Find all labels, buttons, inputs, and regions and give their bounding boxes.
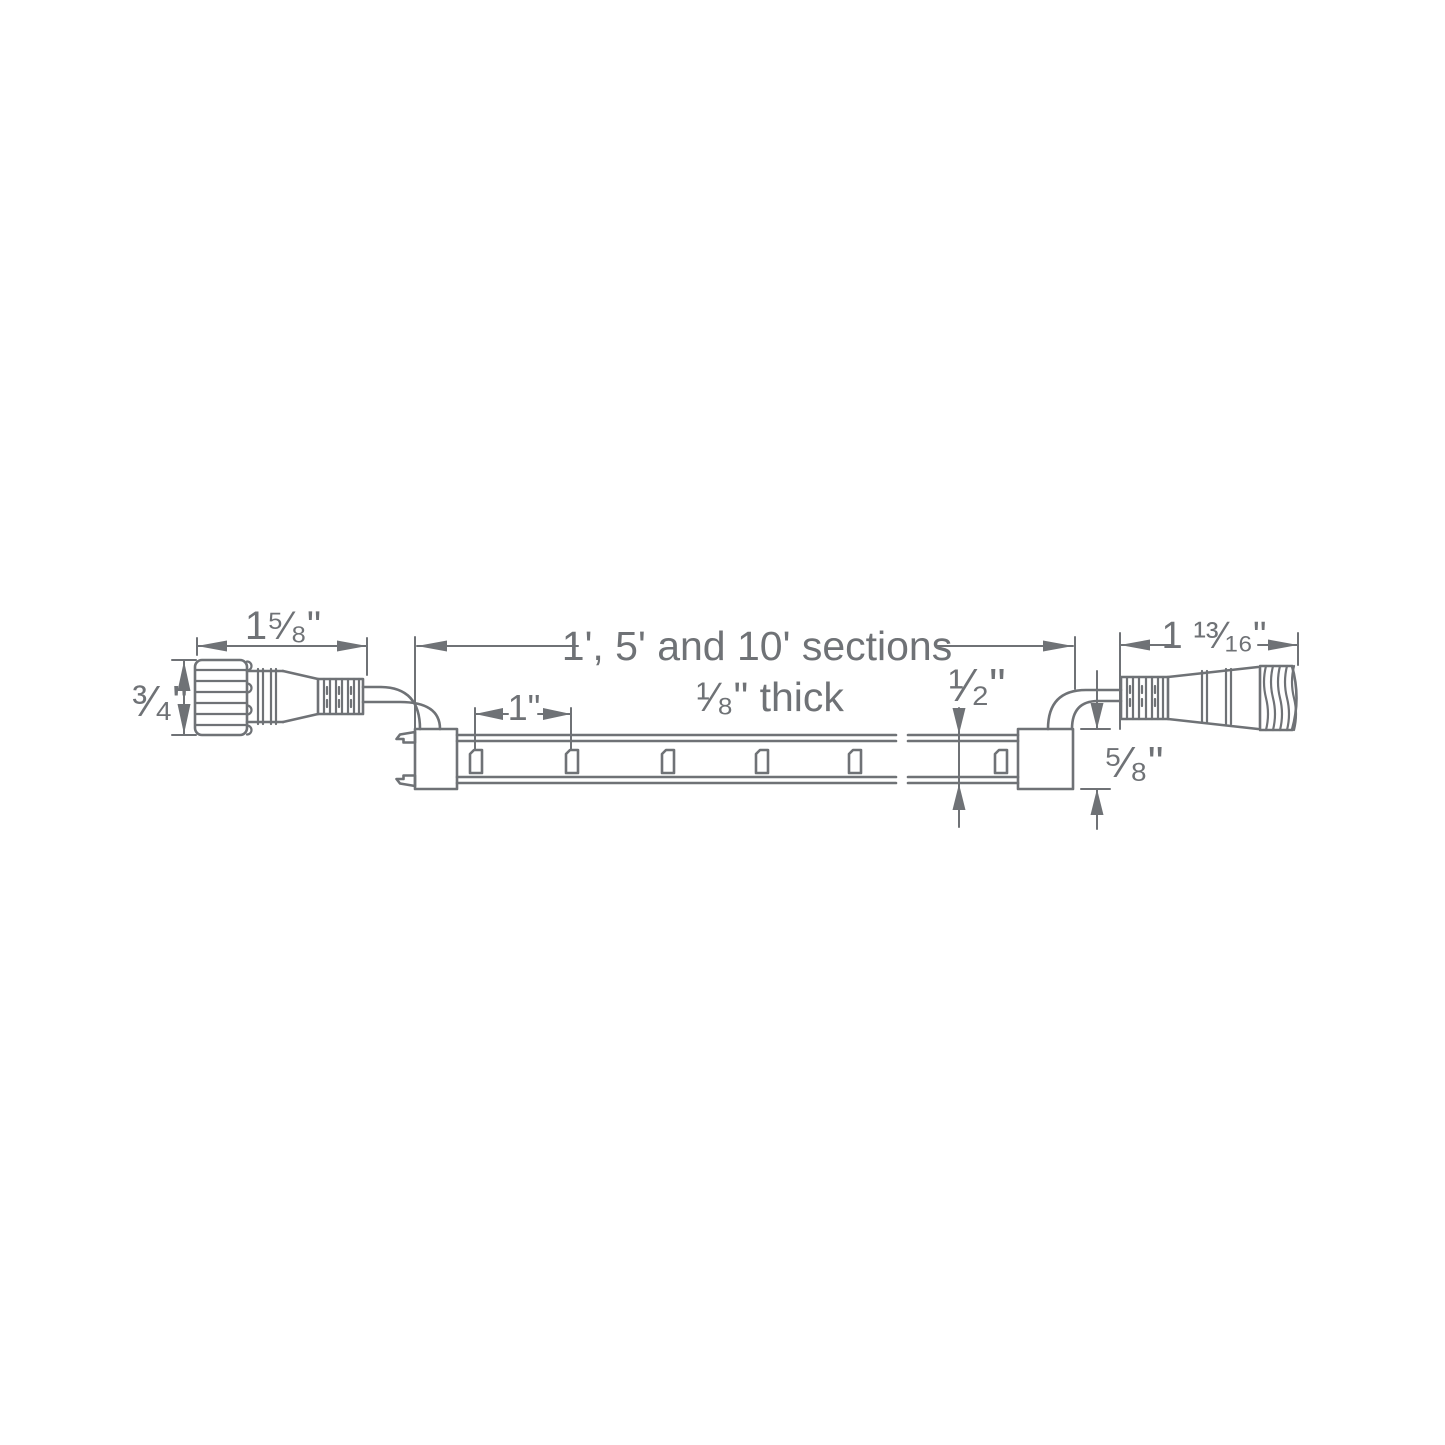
right-connector — [1048, 666, 1297, 730]
left-cable — [363, 687, 440, 729]
left-end-cap-latch-bottom — [397, 776, 416, 787]
right-cable — [1048, 690, 1121, 729]
strip-edges — [457, 735, 1018, 783]
dim-left-connector-length: 1⁵⁄₈" — [197, 604, 367, 675]
right-connector-threads — [1264, 666, 1296, 730]
right-connector-rings — [1202, 669, 1231, 724]
strip-section — [397, 729, 1074, 789]
left-end-cap — [415, 729, 457, 789]
dim-left-connector-diameter: ³⁄₄" — [132, 660, 196, 735]
diagram-canvas: 1⁵⁄₈" ³⁄₄" 1', 5' and 10' sections ¹⁄₈" … — [0, 0, 1445, 1445]
dim-sections-label: 1', 5' and 10' sections — [562, 623, 952, 669]
led-tape-dimension-diagram: 1⁵⁄₈" ³⁄₄" 1', 5' and 10' sections ¹⁄₈" … — [0, 0, 1445, 1445]
dim-end-cap-width-label: ⁵⁄₈" — [1104, 738, 1163, 787]
led-windows — [470, 750, 1007, 773]
label-thickness: ¹⁄₈" thick — [696, 674, 844, 720]
right-connector-taper-body — [1168, 667, 1258, 729]
dim-strip-width-label: ¹⁄₂" — [948, 659, 1005, 711]
dim-left-connector-length-label: 1⁵⁄₈" — [245, 604, 321, 648]
dim-left-connector-diameter-label: ³⁄₄" — [132, 677, 188, 726]
dim-right-connector-length-label: 1 ¹³⁄₁₆" — [1162, 615, 1267, 657]
dim-end-cap-width-arrows — [1091, 703, 1104, 815]
left-connector-neck — [247, 671, 283, 722]
dim-led-spacing-label: 1" — [508, 687, 541, 728]
left-connector-strain-relief-ribs — [324, 679, 359, 714]
left-connector — [195, 660, 440, 735]
left-connector-cap-ridges — [196, 670, 246, 725]
left-end-cap-latch-top — [397, 732, 416, 743]
dim-strip-width: ¹⁄₂" — [948, 659, 1005, 827]
right-connector-strain-relief-ribs — [1127, 677, 1163, 719]
left-connector-neck-rings — [258, 669, 276, 724]
left-connector-knurled-cap — [195, 660, 247, 735]
left-connector-taper-body — [283, 671, 318, 722]
right-end-cap — [1018, 729, 1073, 789]
